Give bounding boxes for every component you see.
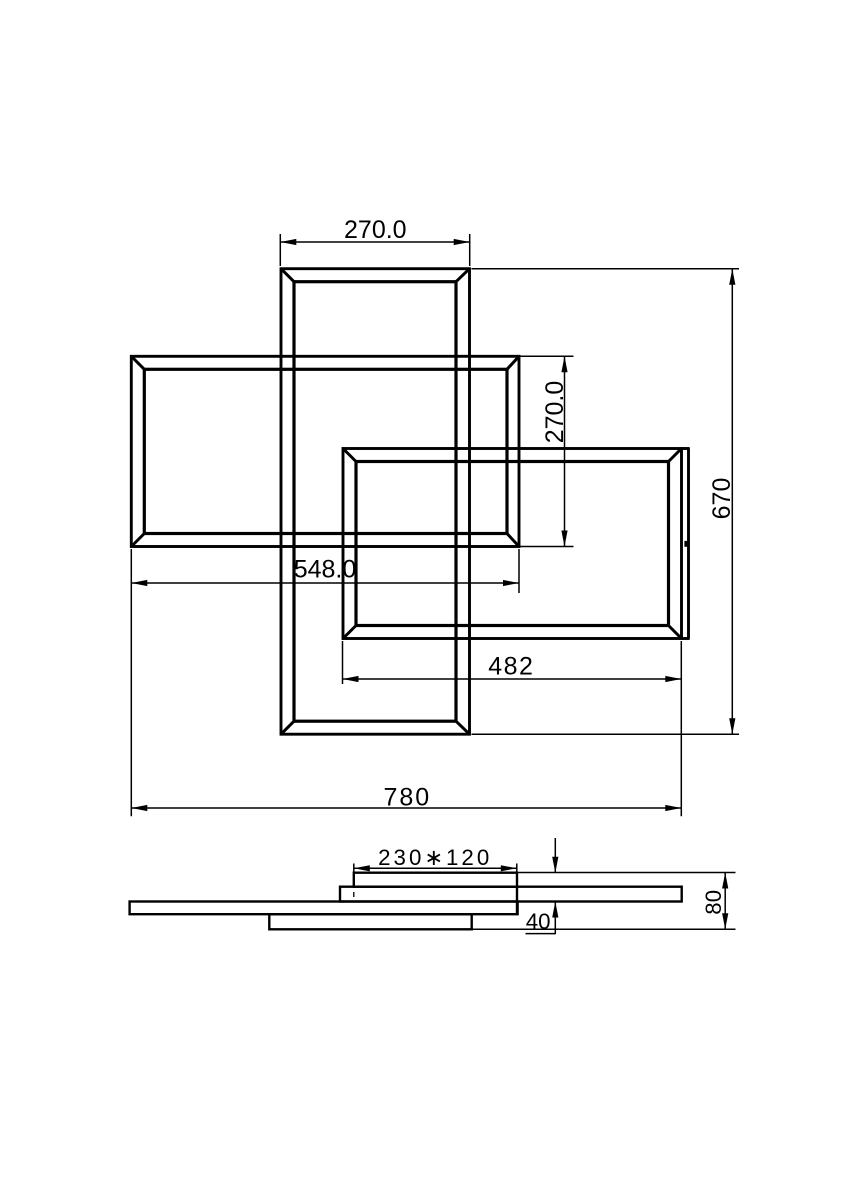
svg-text:270.0: 270.0 bbox=[541, 381, 569, 444]
svg-text:40: 40 bbox=[526, 909, 551, 934]
svg-text:270.0: 270.0 bbox=[344, 216, 407, 244]
svg-text:670: 670 bbox=[708, 478, 736, 520]
svg-text:780: 780 bbox=[383, 784, 431, 812]
svg-text:548.0: 548.0 bbox=[294, 556, 357, 584]
svg-text:80: 80 bbox=[701, 890, 726, 915]
svg-text:230∗120: 230∗120 bbox=[378, 845, 492, 870]
svg-text:482: 482 bbox=[488, 653, 534, 681]
